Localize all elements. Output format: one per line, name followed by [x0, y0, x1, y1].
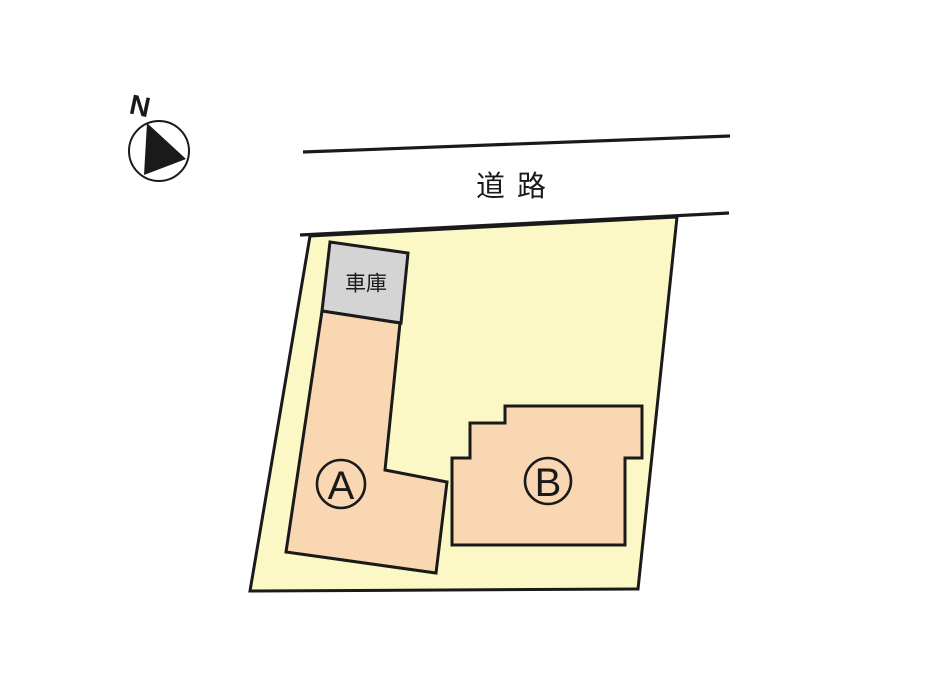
building-b: B	[452, 406, 642, 545]
building-a-label: A	[328, 464, 355, 508]
north-arrow-icon	[144, 123, 186, 175]
road-upper-line	[303, 136, 730, 152]
building-b-label: B	[535, 461, 562, 505]
site-plan-page: N 道 路 車庫 A B	[0, 0, 947, 681]
compass: N	[127, 89, 189, 181]
garage: 車庫	[322, 242, 408, 323]
road-label: 道 路	[476, 170, 548, 203]
site-plan-canvas: N 道 路 車庫 A B	[0, 0, 947, 681]
garage-label: 車庫	[345, 273, 387, 296]
compass-north-label: N	[127, 89, 153, 124]
